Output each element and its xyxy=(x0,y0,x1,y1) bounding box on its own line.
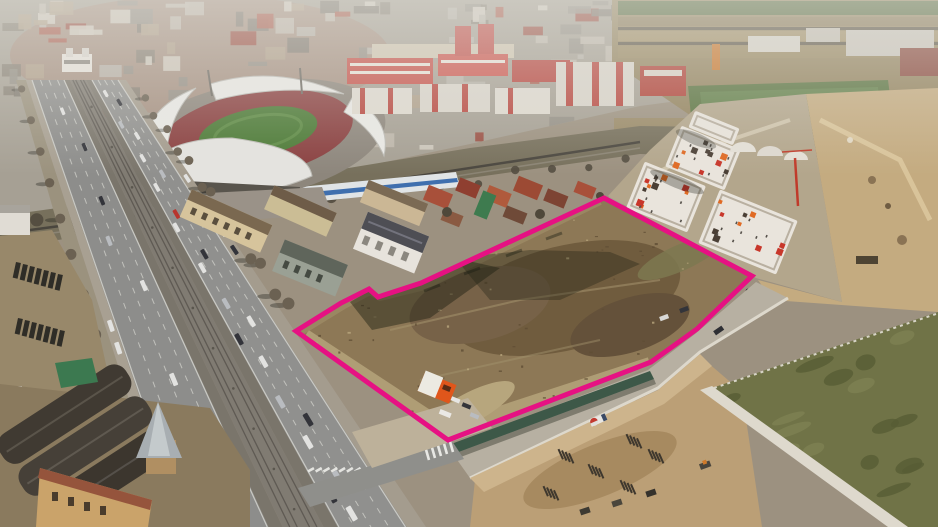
dirt-speckle xyxy=(338,352,340,354)
tree xyxy=(197,183,206,192)
dirt-speckle xyxy=(602,250,604,251)
dirt-speckle xyxy=(499,371,502,372)
tree xyxy=(55,214,65,224)
dirt-speckle xyxy=(602,309,604,310)
dirt-speckle xyxy=(589,352,592,354)
dirt-speckle xyxy=(447,325,449,327)
dirt-speckle xyxy=(318,335,321,337)
dirt-speckle xyxy=(586,240,588,241)
catenary-pole xyxy=(151,226,154,229)
dirt-speckle xyxy=(642,341,645,342)
dirt-speckle xyxy=(584,378,587,379)
dirt-speckle xyxy=(687,263,689,264)
tree xyxy=(255,258,266,269)
catenary-pole xyxy=(212,347,215,350)
dirt-speckle xyxy=(644,232,646,233)
dirt-speckle xyxy=(415,323,417,325)
dirt-speckle xyxy=(500,354,502,356)
catenary-pole xyxy=(192,307,195,310)
catenary-pole xyxy=(131,186,134,189)
dirt-speckle xyxy=(573,220,575,221)
dirt-speckle xyxy=(655,243,658,245)
dirt-speckle xyxy=(639,251,642,252)
aerial-photo xyxy=(0,0,938,527)
aerial-photo-canvas xyxy=(0,0,938,527)
dirt-speckle xyxy=(637,353,640,355)
dirt-speckle xyxy=(613,278,615,280)
dirt-speckle xyxy=(605,246,609,247)
dirt-speckle xyxy=(461,349,464,351)
tree xyxy=(45,178,54,187)
catenary-pole xyxy=(171,266,174,269)
dirt-speckle xyxy=(652,246,654,248)
tree xyxy=(269,289,281,301)
catenary-pole xyxy=(232,387,235,390)
dirt-speckle xyxy=(682,268,684,269)
tree xyxy=(245,253,256,264)
dirt-speckle xyxy=(519,324,521,326)
dirt-speckle xyxy=(349,340,353,341)
dirt-speckle xyxy=(348,332,351,334)
dirt-speckle xyxy=(373,339,375,341)
scrub-tree xyxy=(30,213,43,226)
dirt-speckle xyxy=(652,322,654,324)
catenary-pole xyxy=(293,508,296,511)
catenary-pole xyxy=(252,427,255,430)
dirt-speckle xyxy=(642,255,644,256)
tree xyxy=(206,187,216,197)
catenary-pole xyxy=(273,468,276,471)
dirt-speckle xyxy=(525,328,528,330)
tree xyxy=(282,298,294,310)
dirt-speckle xyxy=(543,397,546,398)
dirt-speckle xyxy=(521,366,523,368)
dirt-speckle xyxy=(513,346,516,347)
dirt-speckle xyxy=(595,236,598,237)
dirt-speckle xyxy=(467,368,469,370)
atmospheric-haze xyxy=(0,0,938,175)
